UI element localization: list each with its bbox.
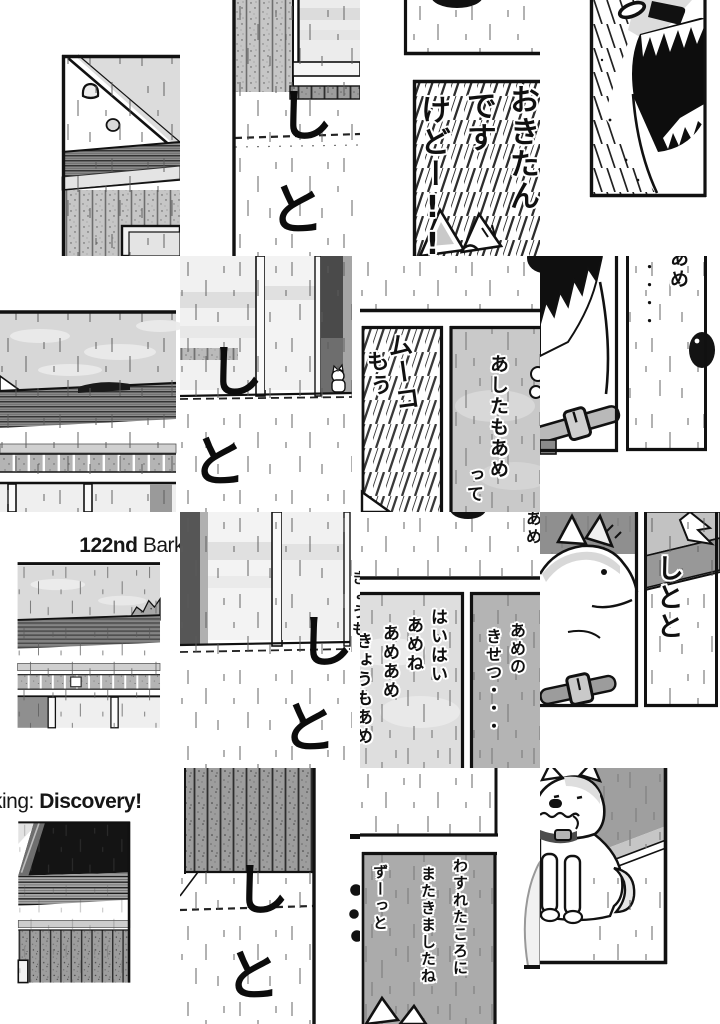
rain-panel [360, 256, 540, 309]
house-gable-art [0, 0, 180, 256]
title-house-art [0, 562, 180, 768]
title-cont-word: Discovery! [39, 790, 141, 813]
title-cont-prefix: king: [0, 790, 34, 813]
chapter-title-left: 122nd Bark [79, 534, 180, 558]
tile-house-wide [0, 256, 180, 512]
tile-wake-shout: おきたん です けどー!! [360, 0, 540, 256]
house-wide-art [0, 256, 180, 512]
rain-overlay [0, 313, 176, 512]
rain-overlay [62, 55, 180, 256]
tile-house-gable [0, 0, 180, 256]
sfx-to: と [276, 698, 332, 754]
tile-title-roof: king: Discovery! [0, 768, 180, 1024]
speech-wake-col1: おきたん [506, 84, 536, 212]
rain-panel [404, 0, 540, 54]
speech-season2: きせつ・・・ [484, 628, 500, 736]
rain-panel [360, 768, 496, 834]
kisetsu-panel [470, 592, 540, 768]
chapter-number: 122nd [79, 534, 137, 557]
edge-partial-text: きょうも [351, 570, 360, 638]
front-leg-right [565, 856, 580, 914]
rain-on-floor [586, 878, 666, 964]
speech-season1: あめの [508, 622, 524, 676]
speech-haihai1: はいはい [428, 608, 445, 684]
tile-screaming-dog [540, 0, 720, 256]
speech-wake-col2: です [463, 90, 493, 154]
scrambled-manga-page: し と おきたん です けどー!! [0, 0, 720, 1024]
nose-partial [689, 332, 715, 368]
speech-haihai3: あめあめ [380, 624, 397, 700]
sfx-to: と [186, 432, 242, 488]
tile-wall-sfx: し と [180, 0, 360, 256]
edge-fragment-bar [350, 834, 360, 839]
sfx-to: と [264, 180, 320, 236]
sfx-to: と [220, 946, 276, 1002]
sfx-shitoto: しとと [654, 554, 681, 641]
sfx-shi: し [202, 342, 258, 398]
paw-right [564, 911, 582, 923]
tile-sitting-dog [540, 768, 720, 1024]
speech-tte: って [464, 466, 481, 504]
front-leg-left [542, 854, 557, 912]
tile-dog-profile: しとと [540, 512, 720, 768]
rain-overlay [18, 565, 160, 728]
tile-door-sfx: し と きょうも [180, 512, 360, 768]
speech-dots: ・・・・ [641, 260, 654, 332]
sfx-shi: し [228, 860, 284, 916]
speech-returned3: ずーっと [372, 864, 387, 932]
speech-haihai2: あめね [404, 616, 421, 673]
dog-panel [540, 512, 638, 711]
sfx-shi: し [292, 612, 348, 668]
chapter-word: Bark [143, 534, 180, 557]
speech-returned2: またきましたね [420, 866, 435, 985]
dog-profile-art [540, 512, 720, 768]
speech-ashita: あしたもあめ [488, 354, 507, 480]
tile-wall-ground: し と [180, 768, 360, 1024]
speckled-wall [185, 768, 313, 872]
sfx-shi: し [272, 86, 328, 142]
eye [601, 569, 607, 575]
speech-ame: あめ [668, 256, 687, 290]
collar-art [540, 256, 720, 512]
edge-fragment-blobs [348, 883, 360, 943]
tile-door-tiny-dog: し と [180, 256, 360, 512]
eye-right [577, 797, 582, 798]
speech-haihai4: きょうもあめ [360, 632, 370, 746]
nose [549, 799, 562, 808]
rain-overlay [18, 822, 130, 983]
speech-mou: もう [363, 349, 391, 400]
border-fragment [524, 965, 540, 969]
tile-title-house: 122nd Bark [0, 512, 180, 768]
mouth-corner-panel [540, 256, 622, 454]
tile-haihai-kisetsu: あめ はいはい あめね あめあめ きょうもあめ あめの きせつ・・・ [360, 512, 540, 768]
dark-roof-art [0, 820, 180, 1024]
partial-figure [531, 367, 540, 381]
eye-left [554, 796, 559, 797]
buckle [555, 830, 571, 840]
paw-left [541, 909, 559, 921]
screaming-dog-art [540, 0, 720, 256]
tile-muko-ashita: ムーコ もう あしたもあめ って [360, 256, 540, 512]
sitting-dog-art [540, 768, 720, 1024]
speech-returned1: わすれたころに [452, 858, 467, 977]
edge-partial-ame: あめ [524, 512, 540, 546]
tile-wasureta: わすれたころに またきましたね ずーっと [360, 768, 540, 1024]
rain-panel [360, 512, 540, 576]
chapter-title-right: king: Discovery! [0, 790, 142, 814]
speech-wake-col3: けどー!! [417, 94, 447, 256]
tile-collar-ame: あめ ・・・・ [540, 256, 720, 512]
